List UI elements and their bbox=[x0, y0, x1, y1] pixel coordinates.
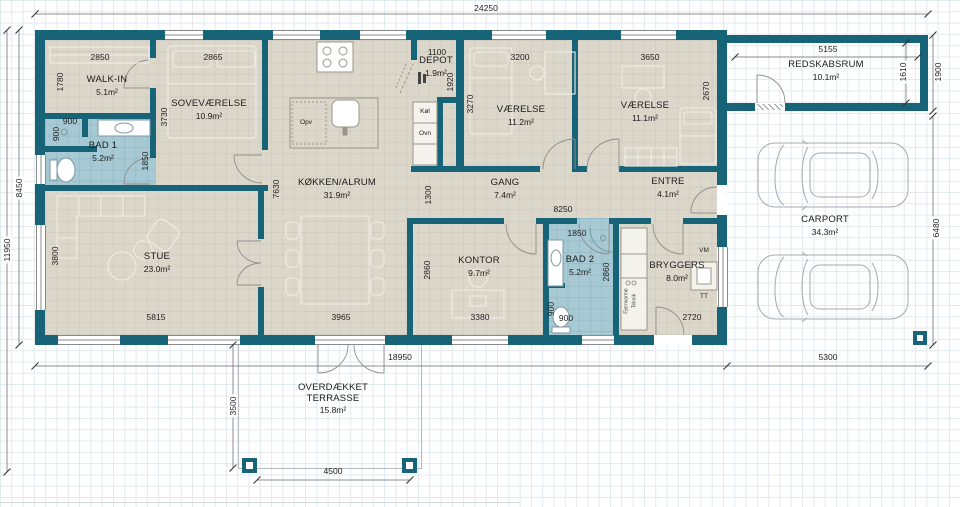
dimension-label: 7630 bbox=[272, 180, 281, 199]
fixture-label-vm: VM bbox=[699, 248, 709, 255]
dimension-label: 3730 bbox=[160, 108, 169, 127]
dimension-label: 8250 bbox=[554, 205, 573, 214]
dimension-label: 5815 bbox=[147, 313, 166, 322]
room-label-overd-kket-terrasse: OVERDÆKKET TERRASSE15.8m² bbox=[287, 383, 379, 415]
dimension-label: 6480 bbox=[932, 217, 941, 240]
dimension-label: 3965 bbox=[332, 313, 351, 322]
room-label-entre: ENTRE4.1m² bbox=[638, 177, 698, 199]
dimension-label: 900 bbox=[52, 127, 61, 141]
room-label-gang: GANG7.4m² bbox=[475, 178, 535, 200]
dimension-label: 1850 bbox=[568, 229, 587, 238]
dimension-label: 8450 bbox=[15, 177, 24, 200]
room-label-v-relse: VÆRELSE11.1m² bbox=[610, 101, 680, 123]
room-label-k-kken-alrum: KØKKEN/ALRUM31.9m² bbox=[285, 178, 389, 200]
dimension-label: 1610 bbox=[899, 61, 908, 84]
dimension-label: 1850 bbox=[141, 152, 150, 171]
fixture-label-teknik: Teknik bbox=[633, 294, 638, 308]
room-label-walk-in: WALK-IN5.1m² bbox=[72, 75, 142, 97]
dimension-label: 2720 bbox=[683, 313, 702, 322]
fixture-label-køl: Køl bbox=[420, 109, 430, 116]
dimension-label: 1900 bbox=[934, 61, 943, 84]
labels-layer: WALK-IN5.1m²SOVEVÆRELSE10.9m²BAD 15.2m²K… bbox=[0, 0, 960, 507]
room-label-bad-1: BAD 15.2m² bbox=[73, 141, 133, 163]
dimension-label: 3650 bbox=[641, 53, 660, 62]
dimension-label: 900 bbox=[559, 314, 573, 323]
dimension-label: 4500 bbox=[324, 467, 343, 476]
dimension-label: 1300 bbox=[424, 186, 433, 205]
room-label-kontor: KONTOR9.7m² bbox=[449, 256, 509, 278]
room-label-bad-2: BAD 25.2m² bbox=[552, 255, 608, 277]
dimension-label: 2860 bbox=[423, 261, 432, 280]
dimension-label: 2670 bbox=[702, 82, 711, 101]
dimension-label: 2865 bbox=[204, 53, 223, 62]
room-label-bryggers: BRYGGERS8.0m² bbox=[642, 261, 712, 283]
dimension-label: 18950 bbox=[388, 353, 412, 362]
room-label-redskabsrum: REDSKABSRUM10.1m² bbox=[771, 60, 881, 82]
dimension-label: 2860 bbox=[602, 263, 611, 282]
floor-plan: WALK-IN5.1m²SOVEVÆRELSE10.9m²BAD 15.2m²K… bbox=[0, 0, 960, 507]
dimension-label: 2850 bbox=[91, 53, 110, 62]
fixture-label-opv: Opv bbox=[300, 120, 312, 127]
dimension-label: 1100 bbox=[428, 48, 446, 57]
room-label-carport: CARPORT34.3m² bbox=[785, 215, 865, 237]
dimension-label: 24250 bbox=[474, 4, 498, 13]
dimension-label: 3270 bbox=[466, 95, 475, 114]
fixture-label-tt: TT bbox=[700, 294, 708, 301]
dimension-label: 5155 bbox=[819, 45, 838, 54]
dimension-label: 3380 bbox=[471, 313, 490, 322]
dimension-label: 5300 bbox=[819, 353, 838, 362]
room-label-v-relse: VÆRELSE11.2m² bbox=[486, 105, 556, 127]
dimension-label: 3800 bbox=[51, 247, 60, 266]
fixture-label-ovn: Ovn bbox=[419, 131, 431, 138]
fixture-label-fjernvarme: Fjernvarme bbox=[625, 288, 630, 313]
dimension-label: 3500 bbox=[229, 395, 238, 418]
dimension-label: 3200 bbox=[511, 53, 530, 62]
dimension-label: 900 bbox=[547, 302, 556, 316]
dimension-label: 1780 bbox=[56, 73, 65, 92]
dimension-label: 900 bbox=[63, 117, 77, 126]
dimension-label: 1920 bbox=[446, 73, 455, 92]
dimension-label: 11950 bbox=[3, 236, 12, 263]
room-label-stue: STUE23.0m² bbox=[127, 252, 187, 274]
room-label-sovev-relse: SOVEVÆRELSE10.9m² bbox=[161, 99, 257, 121]
